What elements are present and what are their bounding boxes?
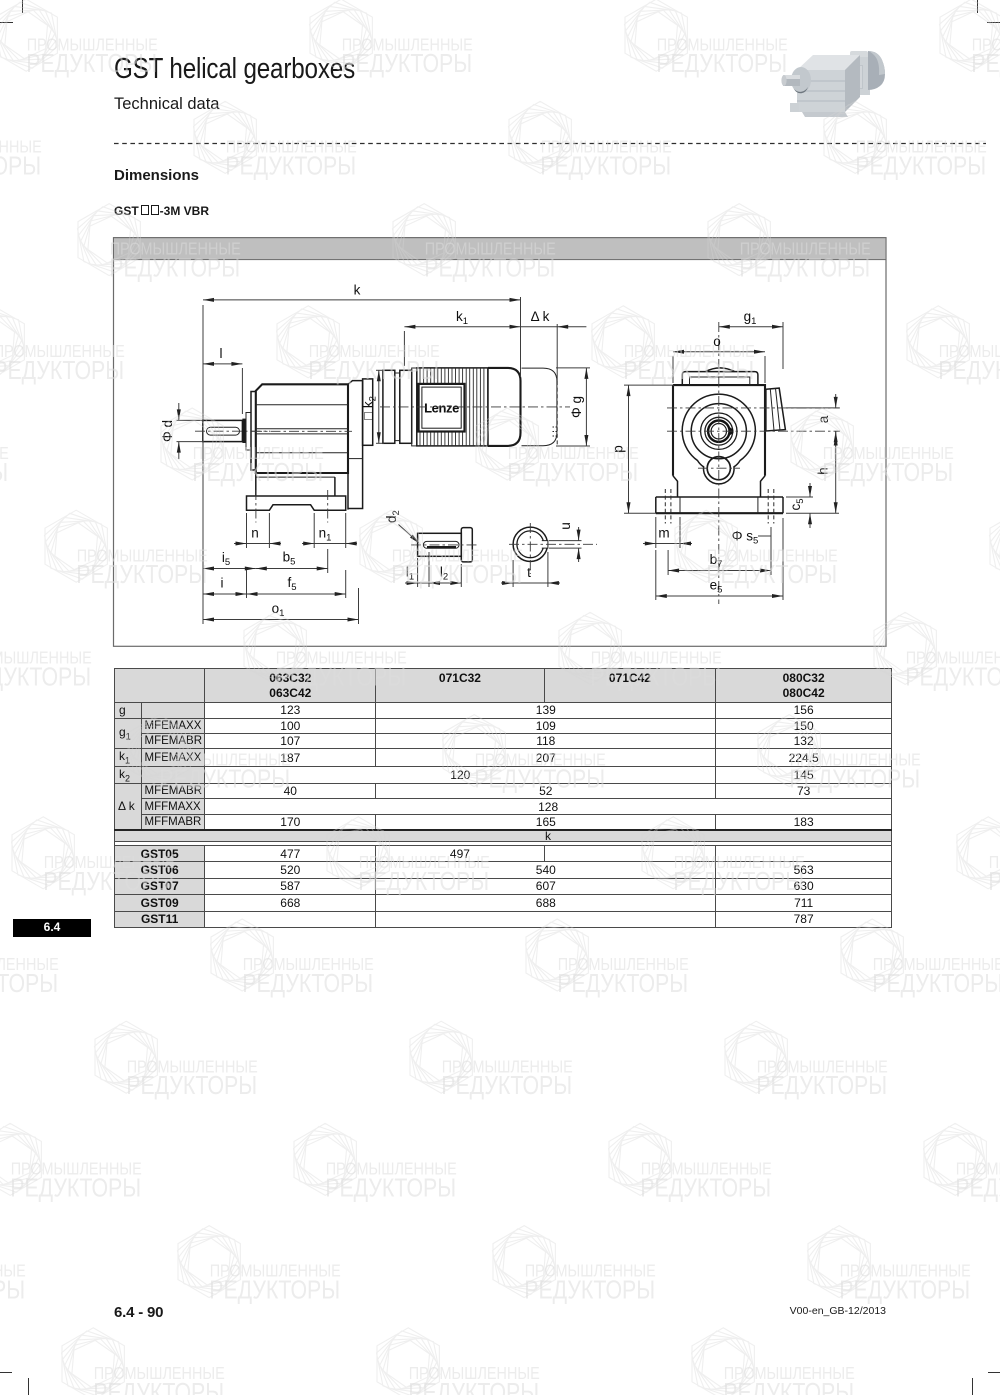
svg-text:o: o <box>713 334 721 349</box>
svg-text:i: i <box>221 576 224 591</box>
svg-text:h: h <box>816 467 831 475</box>
svg-text:b5: b5 <box>283 550 296 568</box>
svg-text:i5: i5 <box>222 550 230 568</box>
svg-text:t: t <box>527 565 531 580</box>
svg-text:Δ k: Δ k <box>531 309 550 324</box>
svg-text:k1: k1 <box>456 309 468 327</box>
svg-text:k: k <box>354 283 361 298</box>
svg-text:b7: b7 <box>710 552 723 570</box>
svg-text:n: n <box>251 526 259 541</box>
svg-text:g1: g1 <box>744 309 757 327</box>
svg-text:n1: n1 <box>319 526 332 544</box>
svg-text:a: a <box>816 415 831 423</box>
svg-text:Φ g: Φ g <box>569 396 584 418</box>
svg-text:l1: l1 <box>406 565 414 583</box>
svg-text:d2: d2 <box>384 510 402 523</box>
svg-text:p: p <box>611 445 626 453</box>
svg-text:Φ s5: Φ s5 <box>732 529 759 547</box>
svg-text:o1: o1 <box>272 601 285 619</box>
svg-text:m: m <box>658 526 669 541</box>
svg-text:e5: e5 <box>710 578 723 596</box>
svg-text:Lenze: Lenze <box>424 400 459 415</box>
svg-text:c5: c5 <box>788 498 806 510</box>
svg-text:l: l <box>220 346 223 361</box>
svg-text:u: u <box>558 522 573 530</box>
svg-text:l2: l2 <box>440 565 448 583</box>
svg-text:f5: f5 <box>287 575 296 593</box>
svg-text:Φ d: Φ d <box>160 420 175 442</box>
